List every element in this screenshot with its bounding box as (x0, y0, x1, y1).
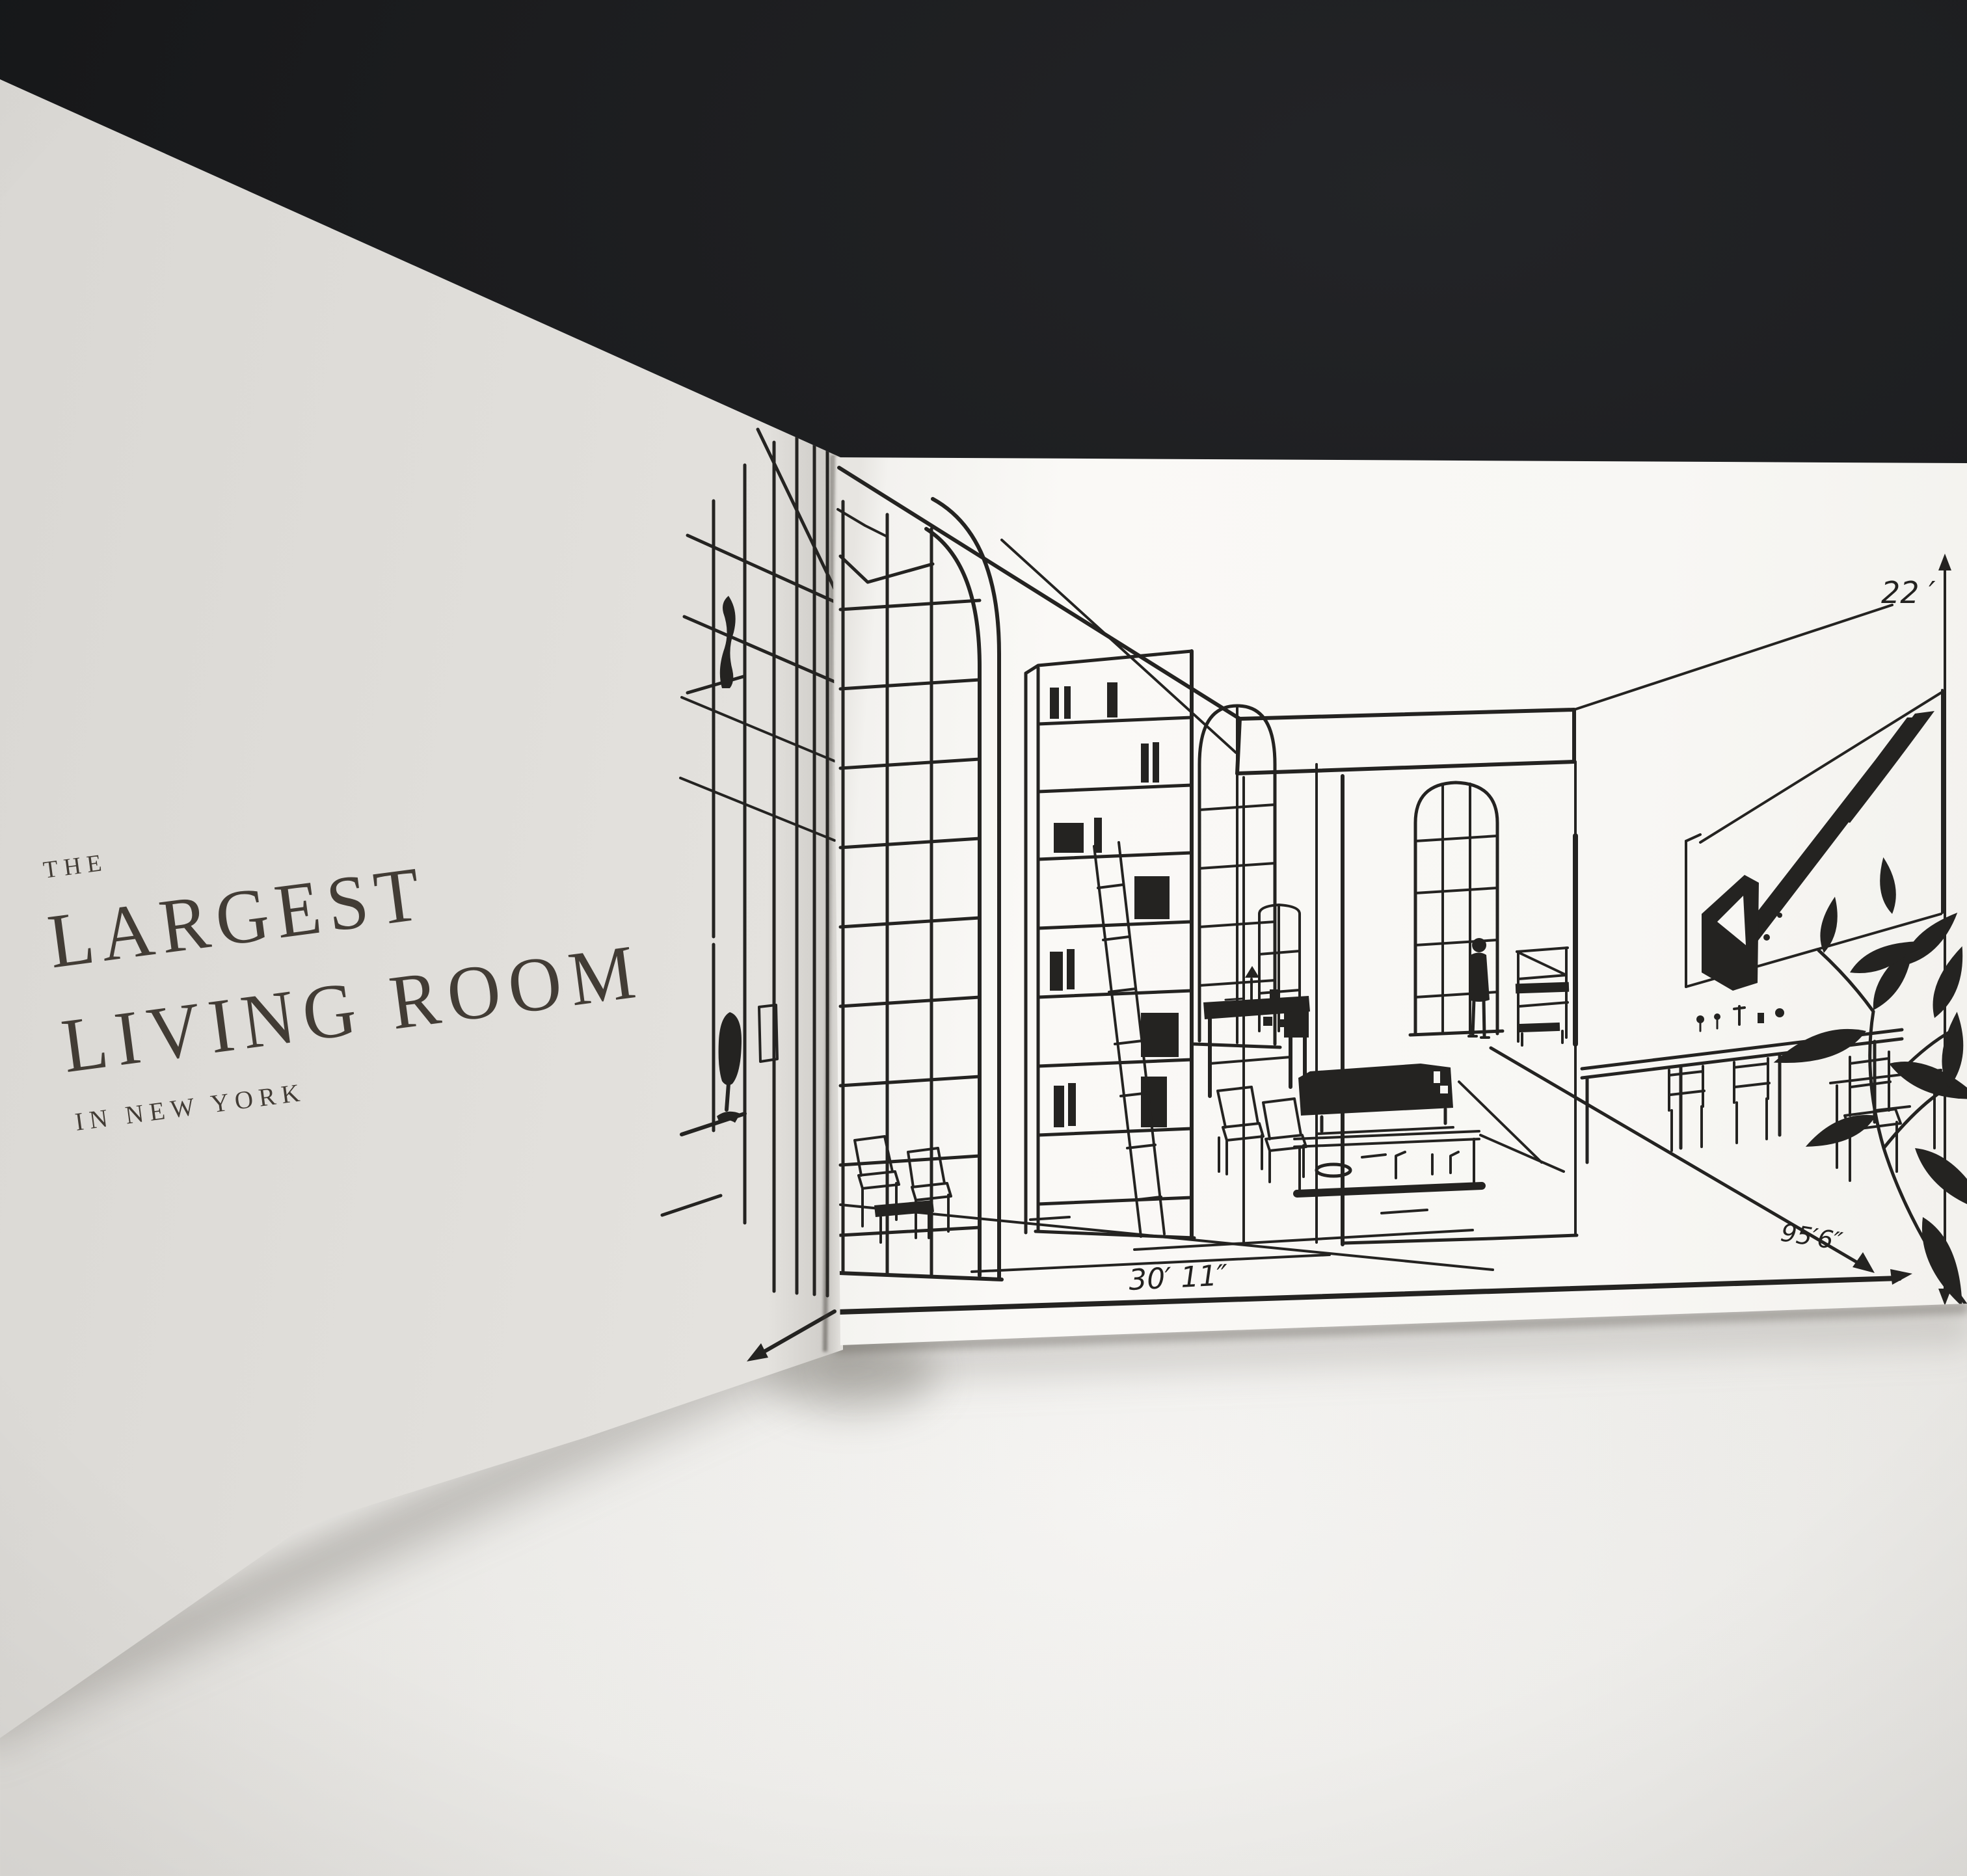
brush-block (1702, 875, 1759, 991)
ceiling-beam (1237, 710, 1574, 773)
floor-lines (840, 1082, 1564, 1272)
fold-ticks (838, 509, 933, 582)
width-dimension-arrow-left (747, 1311, 835, 1361)
arched-window-left (839, 499, 1002, 1280)
sofa (1298, 1064, 1453, 1134)
vase-sculpture (662, 1012, 745, 1215)
chairs-left (1218, 1087, 1306, 1182)
shelving-lines (680, 429, 835, 1296)
diagonal-dimension-label: 95′6″ (1779, 1218, 1845, 1255)
desk (1203, 966, 1310, 1096)
diagonal-dimension: 95′6″ (1491, 1048, 1875, 1273)
width-dimension-label: 30′ 11″ (1128, 1259, 1229, 1297)
coffee-table (1294, 1131, 1482, 1194)
twisted-bottle-sculpture (688, 596, 743, 693)
height-dimension-label: 22 ′ (1881, 575, 1936, 610)
chairs-bottom-left (855, 1136, 951, 1242)
bookshelf (1026, 651, 1194, 1238)
standing-figure (1469, 938, 1490, 1038)
etagere (1516, 948, 1569, 1045)
table-objects (1696, 1006, 1784, 1031)
interior-sketch: 22 ′ 95′6″ 30′ 11″ (835, 459, 1967, 1343)
